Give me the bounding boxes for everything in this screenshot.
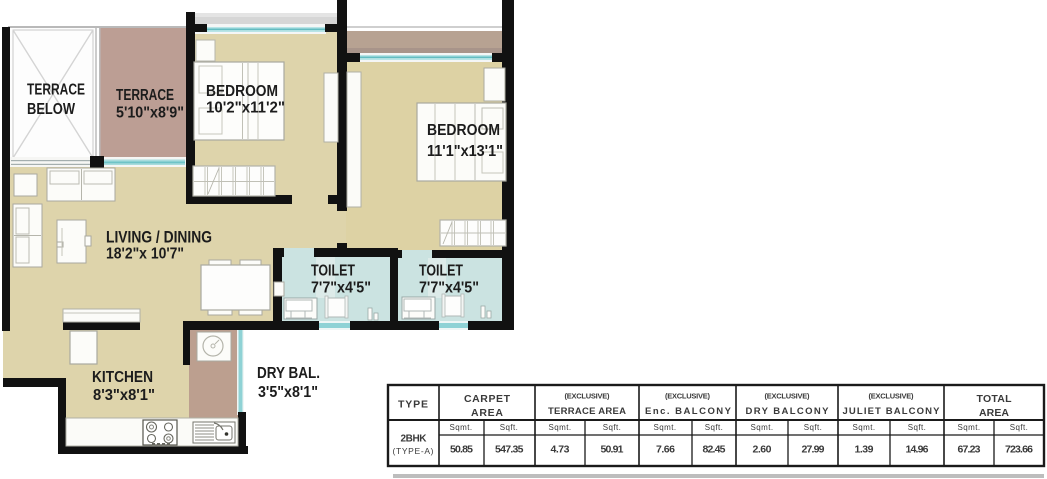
svg-text:(EXCLUSIVE): (EXCLUSIVE) <box>869 392 915 401</box>
svg-text:11'1"x13'1": 11'1"x13'1" <box>427 143 503 160</box>
svg-text:8'3"x8'1": 8'3"x8'1" <box>93 387 155 404</box>
svg-text:AREA: AREA <box>471 407 503 419</box>
svg-text:TOTAL: TOTAL <box>977 393 1013 405</box>
svg-text:547.35: 547.35 <box>495 444 524 456</box>
svg-text:BELOW: BELOW <box>27 101 76 118</box>
svg-text:10'2"x11'2": 10'2"x11'2" <box>206 100 285 117</box>
svg-text:Sqft.: Sqft. <box>804 423 822 432</box>
svg-text:723.66: 723.66 <box>1005 444 1033 456</box>
svg-text:(EXCLUSIVE): (EXCLUSIVE) <box>565 392 611 401</box>
svg-text:CARPET: CARPET <box>464 393 511 405</box>
svg-text:Sqft.: Sqft. <box>908 423 926 432</box>
svg-text:TERRACE AREA: TERRACE AREA <box>548 406 626 417</box>
svg-text:LIVING / DINING: LIVING / DINING <box>106 229 212 247</box>
svg-text:50.85: 50.85 <box>450 444 473 456</box>
svg-text:DRY BALCONY: DRY BALCONY <box>746 406 830 417</box>
svg-text:Sqmt.: Sqmt. <box>654 423 677 432</box>
svg-text:Sqmt.: Sqmt. <box>751 423 774 432</box>
svg-text:TOILET: TOILET <box>311 263 355 280</box>
svg-text:Sqmt.: Sqmt. <box>958 423 981 432</box>
svg-text:DRY BAL.: DRY BAL. <box>257 365 320 382</box>
svg-text:Sqft.: Sqft. <box>500 423 518 432</box>
svg-text:BEDROOM: BEDROOM <box>427 122 500 139</box>
svg-text:3'5"x8'1": 3'5"x8'1" <box>258 384 318 401</box>
svg-text:Sqmt.: Sqmt. <box>549 423 572 432</box>
svg-text:50.91: 50.91 <box>601 444 624 456</box>
svg-text:27.99: 27.99 <box>802 444 825 456</box>
svg-text:18'2"x 10'7": 18'2"x 10'7" <box>106 246 184 263</box>
svg-text:Sqft.: Sqft. <box>603 423 621 432</box>
svg-text:TERRACE: TERRACE <box>27 82 85 99</box>
svg-text:Sqft.: Sqft. <box>1010 423 1028 432</box>
svg-text:(TYPE-A): (TYPE-A) <box>393 446 434 456</box>
svg-text:(EXCLUSIVE): (EXCLUSIVE) <box>765 392 811 401</box>
svg-text:Sqft.: Sqft. <box>705 423 723 432</box>
svg-text:TYPE: TYPE <box>398 399 428 411</box>
svg-text:AREA: AREA <box>979 407 1009 419</box>
svg-text:BEDROOM: BEDROOM <box>206 83 278 100</box>
svg-text:Sqmt.: Sqmt. <box>450 423 473 432</box>
svg-text:KITCHEN: KITCHEN <box>92 369 153 386</box>
svg-text:14.96: 14.96 <box>906 444 929 456</box>
svg-text:2BHK: 2BHK <box>401 434 428 445</box>
svg-text:82.45: 82.45 <box>703 444 726 456</box>
svg-text:67.23: 67.23 <box>958 444 981 456</box>
svg-text:TOILET: TOILET <box>419 263 463 280</box>
svg-text:(EXCLUSIVE): (EXCLUSIVE) <box>665 392 711 401</box>
svg-text:5'10"x8'9": 5'10"x8'9" <box>116 105 184 122</box>
svg-text:7.66: 7.66 <box>656 444 675 456</box>
svg-text:2.60: 2.60 <box>753 444 772 456</box>
svg-text:4.73: 4.73 <box>551 444 570 456</box>
svg-text:TERRACE: TERRACE <box>116 87 174 104</box>
svg-text:Enc. BALCONY: Enc. BALCONY <box>645 406 732 417</box>
svg-text:Sqmt.: Sqmt. <box>853 423 876 432</box>
svg-text:JULIET BALCONY: JULIET BALCONY <box>843 406 941 417</box>
svg-text:7'7"x4'5": 7'7"x4'5" <box>419 280 479 297</box>
svg-text:7'7"x4'5": 7'7"x4'5" <box>311 280 371 297</box>
svg-text:1.39: 1.39 <box>855 444 874 456</box>
